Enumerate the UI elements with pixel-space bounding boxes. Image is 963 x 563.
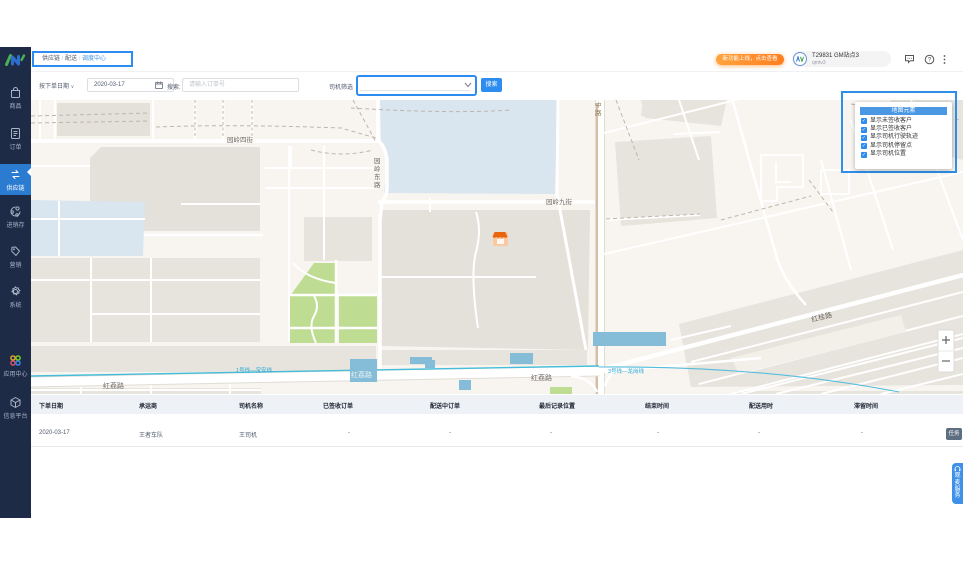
svg-text:3号线—龙岗线: 3号线—龙岗线 <box>608 367 645 375</box>
svg-text:红荔路: 红荔路 <box>351 370 372 379</box>
svg-text:园: 园 <box>374 157 381 165</box>
svg-text:路: 路 <box>595 108 602 117</box>
svg-text:东: 东 <box>374 172 381 181</box>
svg-text:岭: 岭 <box>374 164 381 173</box>
svg-text:红荔路: 红荔路 <box>531 373 552 382</box>
svg-text:园岭四街: 园岭四街 <box>227 135 254 144</box>
svg-text:园岭九街: 园岭九街 <box>546 197 573 206</box>
svg-text:1号线—宝安线: 1号线—宝安线 <box>236 366 273 374</box>
svg-text:路: 路 <box>374 180 381 189</box>
svg-text:中: 中 <box>595 100 602 109</box>
svg-text:?: ? <box>928 57 932 64</box>
svg-text:红荔路: 红荔路 <box>103 381 124 390</box>
